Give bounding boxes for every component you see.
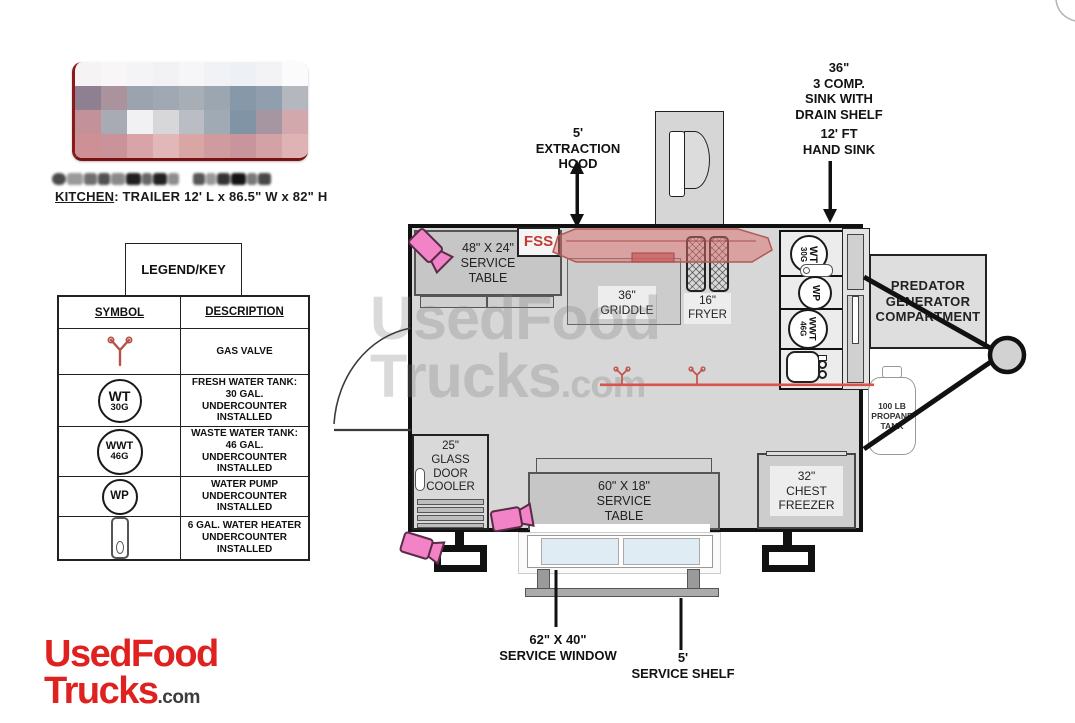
cooler-shelf-2 xyxy=(417,507,484,513)
legend-title: LEGEND/KEY xyxy=(125,243,242,296)
chest-freezer-label: 32" CHEST FREEZER xyxy=(770,466,843,516)
plan-water-heater xyxy=(800,264,833,277)
service-window-pane-right xyxy=(623,538,700,565)
fryer-label: 16" FRYER xyxy=(684,293,731,324)
chest-freezer-hinge xyxy=(766,451,847,456)
legend-row-waste-water: WWT 46G WASTE WATER TANK: 46 GAL. UNDERC… xyxy=(59,427,308,477)
legend-desc-waste-water: WASTE WATER TANK: 46 GAL. UNDERCOUNTER I… xyxy=(181,427,308,476)
cooler-shelf-1 xyxy=(417,499,484,505)
kitchen-spec-label: KITCHEN xyxy=(55,189,114,204)
extraction-hood-label: 5' EXTRACTION HOOD xyxy=(518,125,638,172)
site-logo: UsedFood Trucks.com xyxy=(44,636,218,710)
step-stem-right xyxy=(783,531,792,546)
legend-row-water-pump: WP WATER PUMP UNDERCOUNTER INSTALLED xyxy=(59,477,308,517)
legend-col-description: DESCRIPTION xyxy=(205,306,284,320)
propane-tank: 100 LB PROPANE TANK xyxy=(868,377,916,455)
service-shelf-pointer xyxy=(680,598,683,650)
redacted-logo xyxy=(72,62,308,161)
hand-sink-label: 12' FT HAND SINK xyxy=(778,126,900,157)
service-table-bottom-rail xyxy=(536,458,712,473)
gas-valve-icon xyxy=(102,334,138,370)
hand-sink-arrow xyxy=(823,161,837,223)
waste-water-tank-symbol: WWT 46G xyxy=(97,429,143,475)
redacted-text xyxy=(52,172,271,186)
water-pump-symbol: WP xyxy=(102,479,138,515)
legend-header-row: SYMBOL DESCRIPTION xyxy=(59,297,308,329)
fryer-basket-right xyxy=(709,236,729,292)
service-shelf-post-left xyxy=(537,569,550,589)
hand-sink xyxy=(786,351,820,383)
service-window-pointer xyxy=(555,570,558,627)
service-window-pane-left xyxy=(541,538,619,565)
cooler-shelf-4 xyxy=(417,523,484,528)
hand-sink-knob-1 xyxy=(818,360,827,369)
step-stem-left xyxy=(455,531,464,546)
service-shelf-post-right xyxy=(687,569,700,589)
watermark: UsedFood Trucks.com xyxy=(370,290,660,406)
floor-plan-page: KITCHEN: TRAILER 12' L x 86.5" W x 82" H… xyxy=(0,0,1075,723)
kitchen-spec: KITCHEN: TRAILER 12' L x 86.5" W x 82" H xyxy=(55,189,327,204)
legend-row-gas-valve: GAS VALVE xyxy=(59,329,308,375)
water-heater-symbol xyxy=(111,517,129,559)
roof-vent-duct xyxy=(669,131,685,197)
three-comp-sink-shelf xyxy=(847,234,864,290)
service-shelf xyxy=(525,588,719,597)
service-table-bottom: 60" X 18" SERVICE TABLE xyxy=(528,472,720,530)
cooler-shelf-3 xyxy=(417,515,484,521)
kitchen-spec-value: : TRAILER 12' L x 86.5" W x 82" H xyxy=(114,189,327,204)
legend-row-fresh-water: WT 30G FRESH WATER TANK: 30 GAL. UNDERCO… xyxy=(59,375,308,427)
cooler-side-heater-symbol xyxy=(415,468,425,491)
legend-desc-water-pump: WATER PUMP UNDERCOUNTER INSTALLED xyxy=(181,477,308,516)
glass-door-cooler-label: 25" GLASS DOOR COOLER xyxy=(414,440,487,495)
plan-water-pump: WP xyxy=(798,276,832,310)
hand-sink-knob-2 xyxy=(818,370,827,379)
comp-sink-label: 36" 3 COMP. SINK WITH DRAIN SHELF xyxy=(778,60,900,122)
legend-table: SYMBOL DESCRIPTION GAS VALVE WT 30G FRES… xyxy=(57,295,310,561)
fryer-basket-left xyxy=(686,236,706,292)
fire-suppression-box: FSS xyxy=(517,227,560,257)
legend-desc-gas-valve: GAS VALVE xyxy=(181,329,308,374)
three-comp-sink-handle xyxy=(852,296,859,344)
entry-step-left xyxy=(434,545,487,572)
entry-step-right xyxy=(762,545,815,572)
page-corner-curve xyxy=(1056,0,1075,21)
fresh-water-tank-symbol: WT 30G xyxy=(98,379,142,423)
legend-col-symbol: SYMBOL xyxy=(95,307,144,319)
plan-waste-water-tank: WWT46G xyxy=(788,309,828,349)
legend-row-water-heater: 6 GAL. WATER HEATER UNDERCOUNTER INSTALL… xyxy=(59,517,308,559)
generator-compartment: PREDATOR GENERATOR COMPARTMENT xyxy=(869,254,987,349)
legend-desc-fresh-water: FRESH WATER TANK: 30 GAL. UNDERCOUNTER I… xyxy=(181,375,308,426)
legend-desc-water-heater: 6 GAL. WATER HEATER UNDERCOUNTER INSTALL… xyxy=(181,517,308,559)
service-shelf-label: 5' SERVICE SHELF xyxy=(603,650,763,681)
